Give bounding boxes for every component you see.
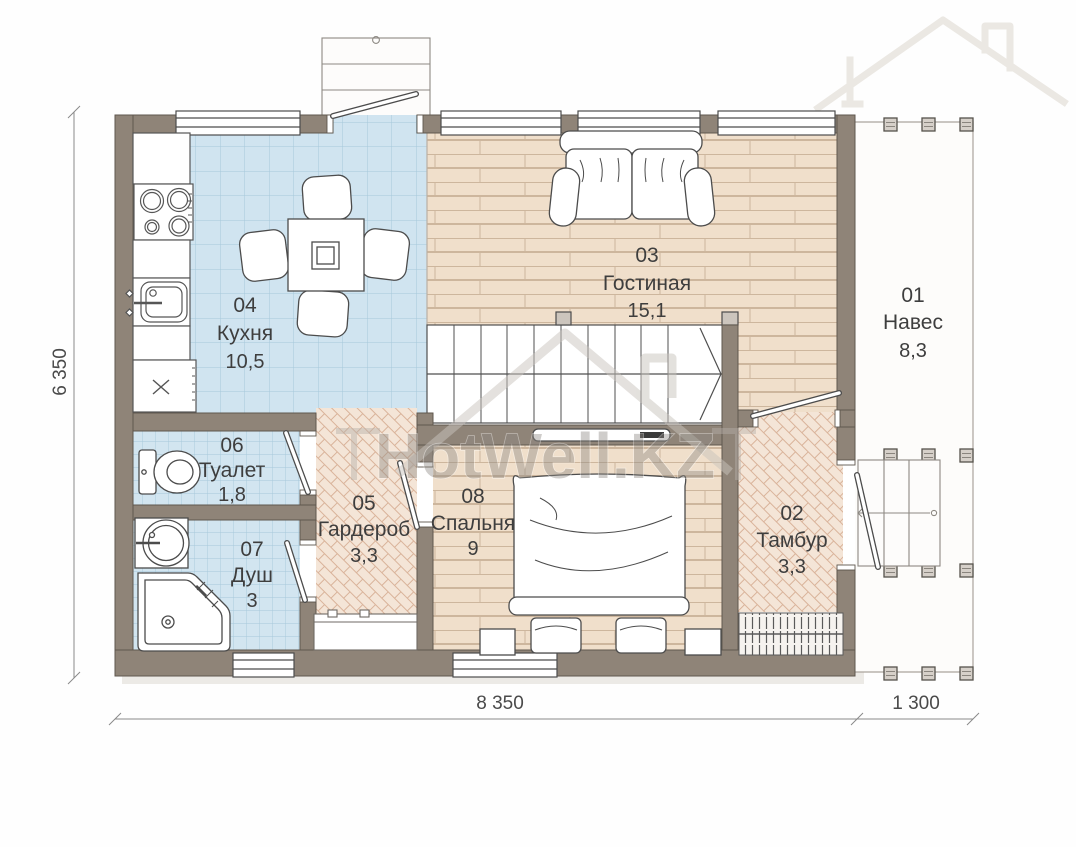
dim-bottom-width: 8 350: [476, 693, 524, 714]
svg-text:Тамбур: Тамбур: [756, 529, 827, 552]
svg-text:3,3: 3,3: [778, 556, 806, 578]
svg-text:05: 05: [352, 492, 375, 515]
svg-text:01: 01: [901, 284, 924, 307]
svg-text:Навес: Навес: [883, 311, 943, 334]
wall-kitchen-toilet: [133, 413, 316, 431]
kitchen-appliance: [133, 360, 196, 412]
svg-text:3: 3: [246, 590, 257, 612]
wall-left: [115, 115, 133, 676]
svg-text:15,1: 15,1: [628, 300, 667, 322]
svg-text:04: 04: [233, 294, 257, 317]
wardrobe-closet: [314, 610, 417, 650]
chair-top: [302, 174, 353, 221]
chair-right: [359, 227, 411, 281]
bed-bench-right: [616, 618, 666, 653]
dim-canopy-width: 1 300: [892, 693, 940, 714]
shower-window: [233, 653, 294, 677]
svg-text:Кухня: Кухня: [217, 322, 273, 345]
canopy-area: [855, 118, 973, 680]
stove: [134, 184, 193, 240]
svg-text:07: 07: [240, 538, 263, 561]
bed-footboard: [509, 597, 689, 615]
kitchen-window: [176, 111, 300, 135]
svg-text:Спальня: Спальня: [431, 512, 515, 535]
svg-text:8,3: 8,3: [899, 340, 927, 362]
kitchen-door-threshold: [333, 115, 417, 133]
living-window-3: [718, 111, 835, 135]
toilet-fixture: [139, 450, 200, 494]
svg-text:Душ: Душ: [231, 564, 273, 587]
sofa: [548, 131, 716, 227]
wall-living-vestibule-left: [738, 410, 753, 427]
washbasin: [135, 518, 189, 568]
svg-text:10,5: 10,5: [226, 351, 265, 373]
kitchen-counter: [126, 133, 196, 412]
chair-bottom: [296, 289, 349, 337]
svg-text:Гардероб: Гардероб: [318, 518, 410, 541]
svg-text:1,8: 1,8: [218, 484, 246, 506]
bed-bench-left: [531, 618, 581, 653]
svg-text:02: 02: [780, 502, 803, 525]
living-window-1: [441, 111, 561, 135]
svg-text:08: 08: [461, 485, 484, 508]
entrance-steps: [858, 460, 940, 566]
chair-left: [238, 228, 290, 282]
doormat: [739, 613, 843, 655]
svg-text:Туалет: Туалет: [199, 459, 266, 482]
wall-wardrobe-bedroom-low: [417, 527, 433, 650]
watermark-text: HotWell.KZ: [375, 420, 715, 492]
wall-bedroom-vestibule: [722, 325, 738, 650]
svg-text:9: 9: [467, 538, 478, 560]
floor-plan-canvas: HotWell.KZ 04 Кухня 10,5 03 Гостиная 15,…: [0, 0, 1076, 847]
nightstand-left: [480, 629, 515, 655]
dim-left-height: 6 350: [50, 348, 71, 396]
floor-plan-drawing: HotWell.KZ 04 Кухня 10,5 03 Гостиная 15,…: [0, 0, 1076, 847]
svg-text:Гостиная: Гостиная: [603, 272, 691, 295]
bedroom-window: [453, 653, 557, 677]
nightstand-right: [685, 629, 721, 655]
kitchen-sink: [126, 278, 190, 326]
svg-text:3,3: 3,3: [350, 545, 378, 567]
house-logo-watermark: [818, 20, 1064, 108]
svg-text:03: 03: [635, 244, 658, 267]
wall-living-vestibule-right: [840, 410, 855, 427]
svg-text:06: 06: [220, 434, 243, 457]
wall-right-upper: [837, 115, 855, 460]
